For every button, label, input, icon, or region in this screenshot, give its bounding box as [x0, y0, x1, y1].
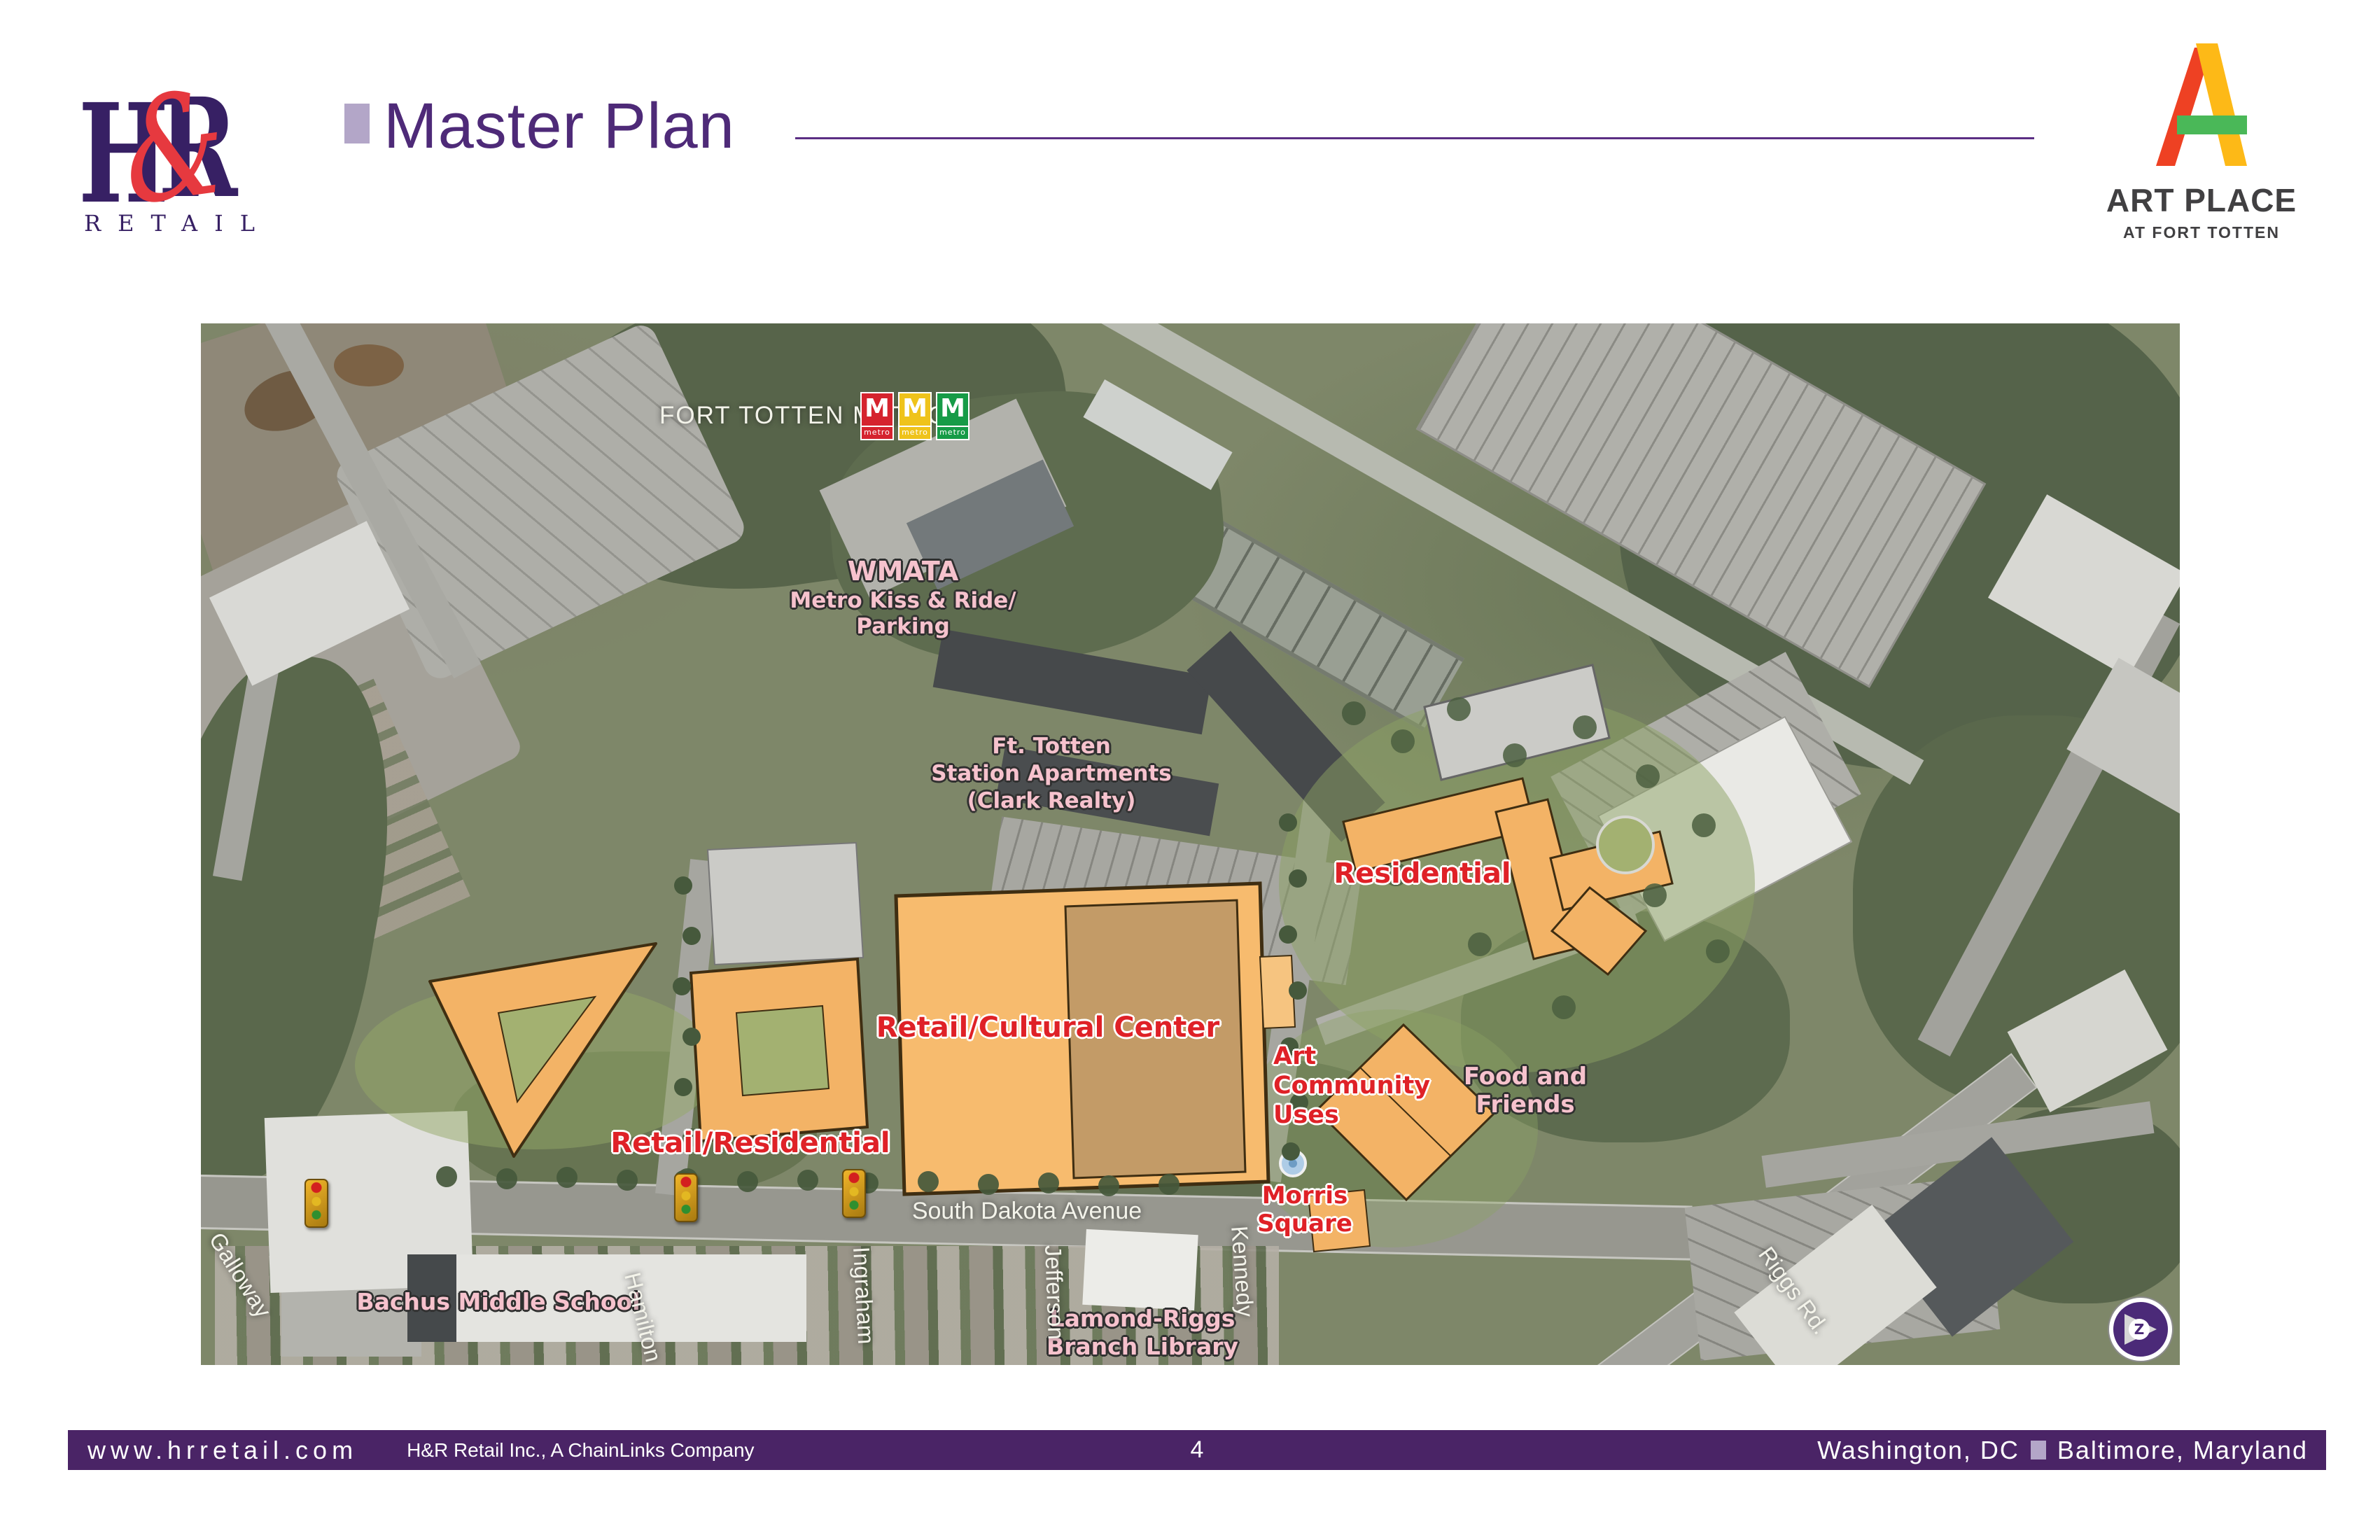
map-trees: [1342, 701, 1366, 725]
footer-location-baltimore: Baltimore, Maryland: [2057, 1436, 2308, 1465]
title-bullet-square: [344, 104, 370, 143]
compass-arrow-icon: Z: [2109, 1298, 2172, 1361]
label-morris-square: Morris Square: [1231, 1182, 1378, 1238]
label-line: Morris: [1231, 1182, 1378, 1210]
label-wmata-kiss-ride: WMATA Metro Kiss & Ride/ Parking: [787, 556, 1018, 640]
metro-logo-1: M metro: [898, 392, 932, 440]
footer-page-number: 4: [1191, 1436, 1204, 1464]
metro-m-icon: M: [936, 392, 969, 427]
artplace-a-logo-icon: [2156, 43, 2247, 166]
label-station-apartments: Ft. Totten Station Apartments (Clark Rea…: [908, 733, 1195, 814]
metro-sub-label: metro: [860, 427, 894, 440]
label-line: WMATA: [787, 556, 1018, 588]
footer-website: www.hrretail.com: [87, 1436, 358, 1465]
master-plan-aerial-map: FORT TOTTEN METRO M metro M metro M metr…: [201, 323, 2180, 1365]
footer-bar: www.hrretail.com H&R Retail Inc., A Chai…: [68, 1430, 2326, 1470]
label-line: Station Apartments: [908, 760, 1195, 787]
metro-m-icon: M: [898, 392, 932, 427]
label-retail-residential: Retail/Residential: [607, 1127, 894, 1159]
label-bachus-middle-school: Bachus Middle School: [355, 1288, 642, 1315]
label-line: Parking: [787, 614, 1018, 640]
site-plan-overlay: [201, 323, 2180, 1365]
label-line: Square: [1231, 1210, 1378, 1238]
footer-square-divider: [2031, 1441, 2046, 1459]
label-line: (Clark Realty): [908, 787, 1195, 815]
metro-logos: M metro M metro M metro: [860, 392, 969, 440]
title-underline: [795, 137, 2034, 139]
label-food-and-friends: Food and Friends: [1417, 1063, 1634, 1119]
label-line: Ft. Totten: [908, 733, 1195, 760]
hr-retail-logo: H R & RETAIL: [77, 70, 287, 231]
hr-logo-ampersand: &: [119, 71, 230, 227]
page-title: Master Plan: [384, 90, 735, 163]
traffic-light-icon: [674, 1173, 698, 1222]
map-street-trees: [1279, 813, 1297, 832]
metro-logo-2: M metro: [936, 392, 969, 440]
traffic-light-icon: [842, 1169, 866, 1218]
map-street-trees: [436, 1166, 457, 1187]
metro-m-icon: M: [860, 392, 894, 427]
street-label-jefferson: Jefferson: [1039, 1245, 1070, 1340]
footer-location-washington: Washington, DC: [1817, 1436, 2019, 1465]
artplace-logo: ART PLACE AT FORT TOTTEN: [2096, 43, 2306, 242]
artplace-logo-subtitle: AT FORT TOTTEN: [2096, 223, 2306, 242]
footer-locations: Washington, DC Baltimore, Maryland: [1817, 1436, 2308, 1465]
traffic-light-icon: [304, 1179, 328, 1228]
metro-logo-0: M metro: [860, 392, 894, 440]
label-line: Metro Kiss & Ride/: [787, 588, 1018, 614]
street-label-ingraham: Ingraham: [848, 1246, 879, 1345]
footer-company: H&R Retail Inc., A ChainLinks Company: [407, 1439, 754, 1462]
metro-sub-label: metro: [936, 427, 969, 440]
map-street-trees: [674, 876, 692, 895]
label-retail-cultural-center: Retail/Cultural Center: [869, 1011, 1226, 1044]
compass-letter: Z: [2129, 1319, 2150, 1340]
metro-sub-label: metro: [898, 427, 932, 440]
label-south-dakota-avenue: South Dakota Avenue: [883, 1198, 1170, 1225]
label-line: Branch Library: [999, 1333, 1286, 1361]
label-residential: Residential: [1314, 857, 1531, 890]
artplace-logo-title: ART PLACE: [2096, 181, 2306, 219]
